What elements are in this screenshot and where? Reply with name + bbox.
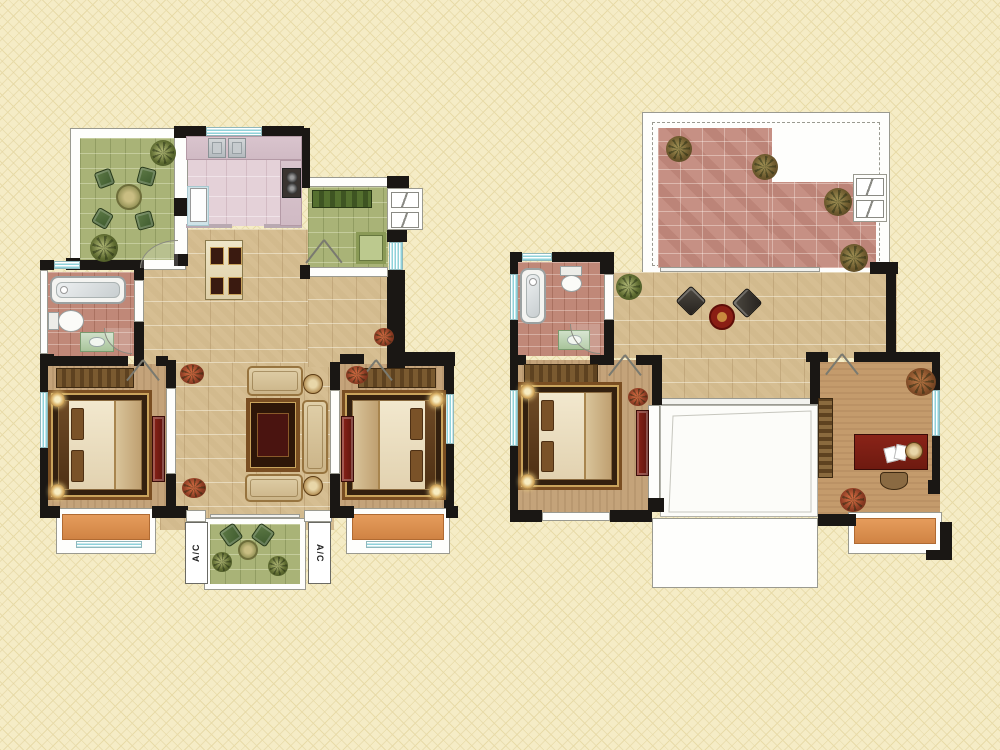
dining-chair — [228, 277, 242, 295]
tv-cabinet — [152, 416, 165, 482]
bathroom2-side-window — [510, 274, 518, 320]
dining-table — [205, 240, 243, 300]
bathtub — [50, 276, 126, 304]
tv-cabinet — [636, 410, 649, 476]
bay-window2-glass — [366, 541, 432, 548]
bay-window1-floor — [62, 514, 150, 540]
refrigerator — [190, 188, 207, 222]
wall-segment — [262, 126, 304, 136]
wall-post — [174, 198, 188, 216]
wall-post — [300, 265, 310, 279]
terrace-plant — [840, 244, 868, 272]
flower-pot — [182, 478, 206, 498]
side-garden-top-rail — [308, 177, 388, 187]
flower-pot — [374, 328, 394, 346]
hall-east-wall — [886, 274, 896, 352]
bed-pillow — [541, 400, 554, 431]
terrace-plant — [666, 136, 692, 162]
toilet — [48, 308, 86, 334]
wall-segment — [818, 514, 856, 526]
wall-segment — [340, 354, 364, 364]
wall-segment — [188, 126, 206, 136]
bed-pillow — [71, 408, 84, 440]
bedside-lamp — [50, 392, 65, 407]
study-window — [932, 390, 940, 436]
wall-post — [928, 480, 940, 494]
double-height-void — [660, 405, 818, 517]
bay-window1-glass — [76, 541, 142, 548]
study-desk — [854, 434, 928, 470]
dining-chair — [210, 247, 224, 265]
ac-platform-label-left: A/C — [185, 522, 208, 584]
wall-segment — [510, 362, 518, 390]
wall-segment — [40, 506, 60, 518]
upper-hall-floor — [605, 272, 897, 358]
living-room-rug — [246, 398, 300, 472]
bay-window3-floor — [854, 518, 936, 544]
ac-unit-icon — [856, 178, 884, 196]
wall-post — [648, 498, 664, 512]
bay-window2-floor — [352, 514, 444, 540]
dining-chair — [228, 247, 242, 265]
terrace-sliding-door — [660, 267, 820, 272]
bed-headboard — [529, 393, 539, 479]
bed-pillow — [71, 450, 84, 482]
wall-frame — [304, 510, 332, 522]
wall-segment — [166, 360, 176, 388]
wall-post — [387, 176, 409, 188]
wall-segment — [40, 364, 48, 392]
bedside-lamp — [50, 484, 65, 499]
potted-plant — [150, 140, 176, 166]
bedroom2-partition — [330, 390, 340, 474]
bedside-lamp — [520, 474, 535, 489]
void-inner-outline — [661, 406, 819, 518]
bed-headboard — [59, 401, 69, 489]
bedroom2-top-wall — [387, 352, 455, 366]
dining-chair — [210, 277, 224, 295]
loveseat-sofa — [245, 474, 303, 502]
bedroom3-bay-window — [542, 512, 610, 521]
wall-segment — [552, 252, 610, 262]
ac-unit-icon — [856, 200, 884, 218]
bed-pillow — [541, 441, 554, 472]
wall-frame — [186, 510, 206, 522]
bathroom2-partition — [604, 274, 614, 320]
wall-segment — [152, 506, 188, 518]
hall-tea-table — [709, 304, 735, 330]
bookshelf — [818, 398, 833, 478]
flower-pot — [180, 364, 204, 384]
bedroom3-void-partition — [648, 405, 660, 501]
wall-segment — [387, 230, 407, 242]
desk-lamp — [905, 442, 923, 460]
study-door — [828, 354, 854, 378]
toilet — [556, 266, 586, 294]
wall-segment — [510, 252, 518, 274]
wall-segment — [40, 448, 48, 510]
side-garden-bottom-rail — [308, 267, 388, 277]
side-garden-window — [389, 242, 403, 270]
kitchen-sink — [208, 138, 226, 158]
wall-segment — [510, 320, 518, 360]
balcony-table — [238, 540, 258, 560]
wardrobe — [56, 368, 134, 388]
kitchen-window — [206, 127, 262, 136]
bedroom2-rug — [342, 390, 446, 500]
terrace-plant — [752, 154, 778, 180]
flower-pot — [840, 488, 866, 512]
bedroom3-bed — [528, 392, 612, 480]
bedroom1-partition — [166, 388, 176, 474]
flower-pot — [628, 388, 648, 406]
three-seat-sofa — [302, 400, 328, 474]
floor-plan-upper — [510, 110, 942, 590]
wall-segment — [870, 262, 898, 274]
balcony-sliding-door — [210, 514, 300, 518]
bedroom1-bed — [58, 400, 142, 490]
wall-segment — [40, 260, 54, 270]
bedroom3-window — [510, 390, 518, 446]
flower-pot — [906, 368, 936, 396]
terrace-plant — [824, 188, 852, 216]
bathroom-partition — [134, 280, 144, 322]
potted-plant — [90, 234, 118, 262]
wall-corner — [926, 550, 952, 560]
desk-chair — [880, 472, 908, 490]
floor-plan-lower: A/C A/C — [40, 124, 466, 590]
garden-table — [116, 184, 142, 210]
wall-segment — [636, 355, 652, 365]
bed-pillow — [410, 450, 423, 482]
kitchen-sink — [228, 138, 246, 158]
tv-cabinet — [341, 416, 354, 482]
bed-blanket — [353, 401, 380, 489]
ac-fan-icon — [391, 192, 419, 208]
bed-pillow — [410, 408, 423, 440]
upper-hall-landing — [660, 358, 818, 402]
flower-pot — [346, 366, 368, 384]
bedside-lamp — [429, 484, 444, 499]
potted-plant — [616, 274, 642, 300]
bedroom1-top-wall — [48, 356, 128, 366]
bedside-lamp — [429, 392, 444, 407]
side-table — [303, 374, 323, 394]
bedroom2-bed — [352, 400, 436, 490]
loveseat-sofa — [247, 366, 303, 396]
void-railing — [660, 398, 818, 405]
bedroom3-rug — [518, 382, 622, 490]
garden-rug — [356, 232, 386, 264]
wall-segment — [652, 355, 662, 405]
potted-plant — [268, 556, 288, 576]
wardrobe — [524, 364, 598, 384]
potted-plant — [212, 552, 232, 572]
study-top-wall — [854, 352, 940, 362]
wall-segment — [330, 362, 340, 390]
west-rail — [40, 270, 48, 354]
bedroom1-rug — [48, 390, 152, 500]
side-garden-door — [310, 240, 336, 266]
bathtub — [520, 268, 546, 324]
ac-fan-icon — [391, 212, 419, 228]
bed-blanket — [584, 393, 611, 479]
garden-bench — [312, 190, 372, 208]
wall-segment — [610, 510, 652, 522]
wall-segment — [932, 436, 940, 482]
bedroom1-window — [40, 392, 48, 448]
floor-plan-sheet: A/C A/C — [0, 0, 1000, 750]
gas-stove — [282, 168, 301, 198]
bed-blanket — [114, 401, 141, 489]
lower-balcony-outline — [652, 518, 818, 588]
bed-headboard — [425, 401, 435, 489]
bedside-lamp — [520, 384, 535, 399]
wall-segment — [510, 510, 542, 522]
bedroom1-door — [128, 360, 156, 384]
side-table — [303, 476, 323, 496]
bathroom-window — [54, 261, 80, 269]
wall-segment — [604, 252, 614, 274]
bathroom2-window — [522, 253, 552, 261]
wall-segment — [330, 474, 340, 518]
wall-segment — [80, 260, 138, 270]
wall-segment — [510, 446, 518, 516]
ac-platform-label-right: A/C — [308, 522, 331, 584]
bedroom3-door — [612, 355, 636, 379]
